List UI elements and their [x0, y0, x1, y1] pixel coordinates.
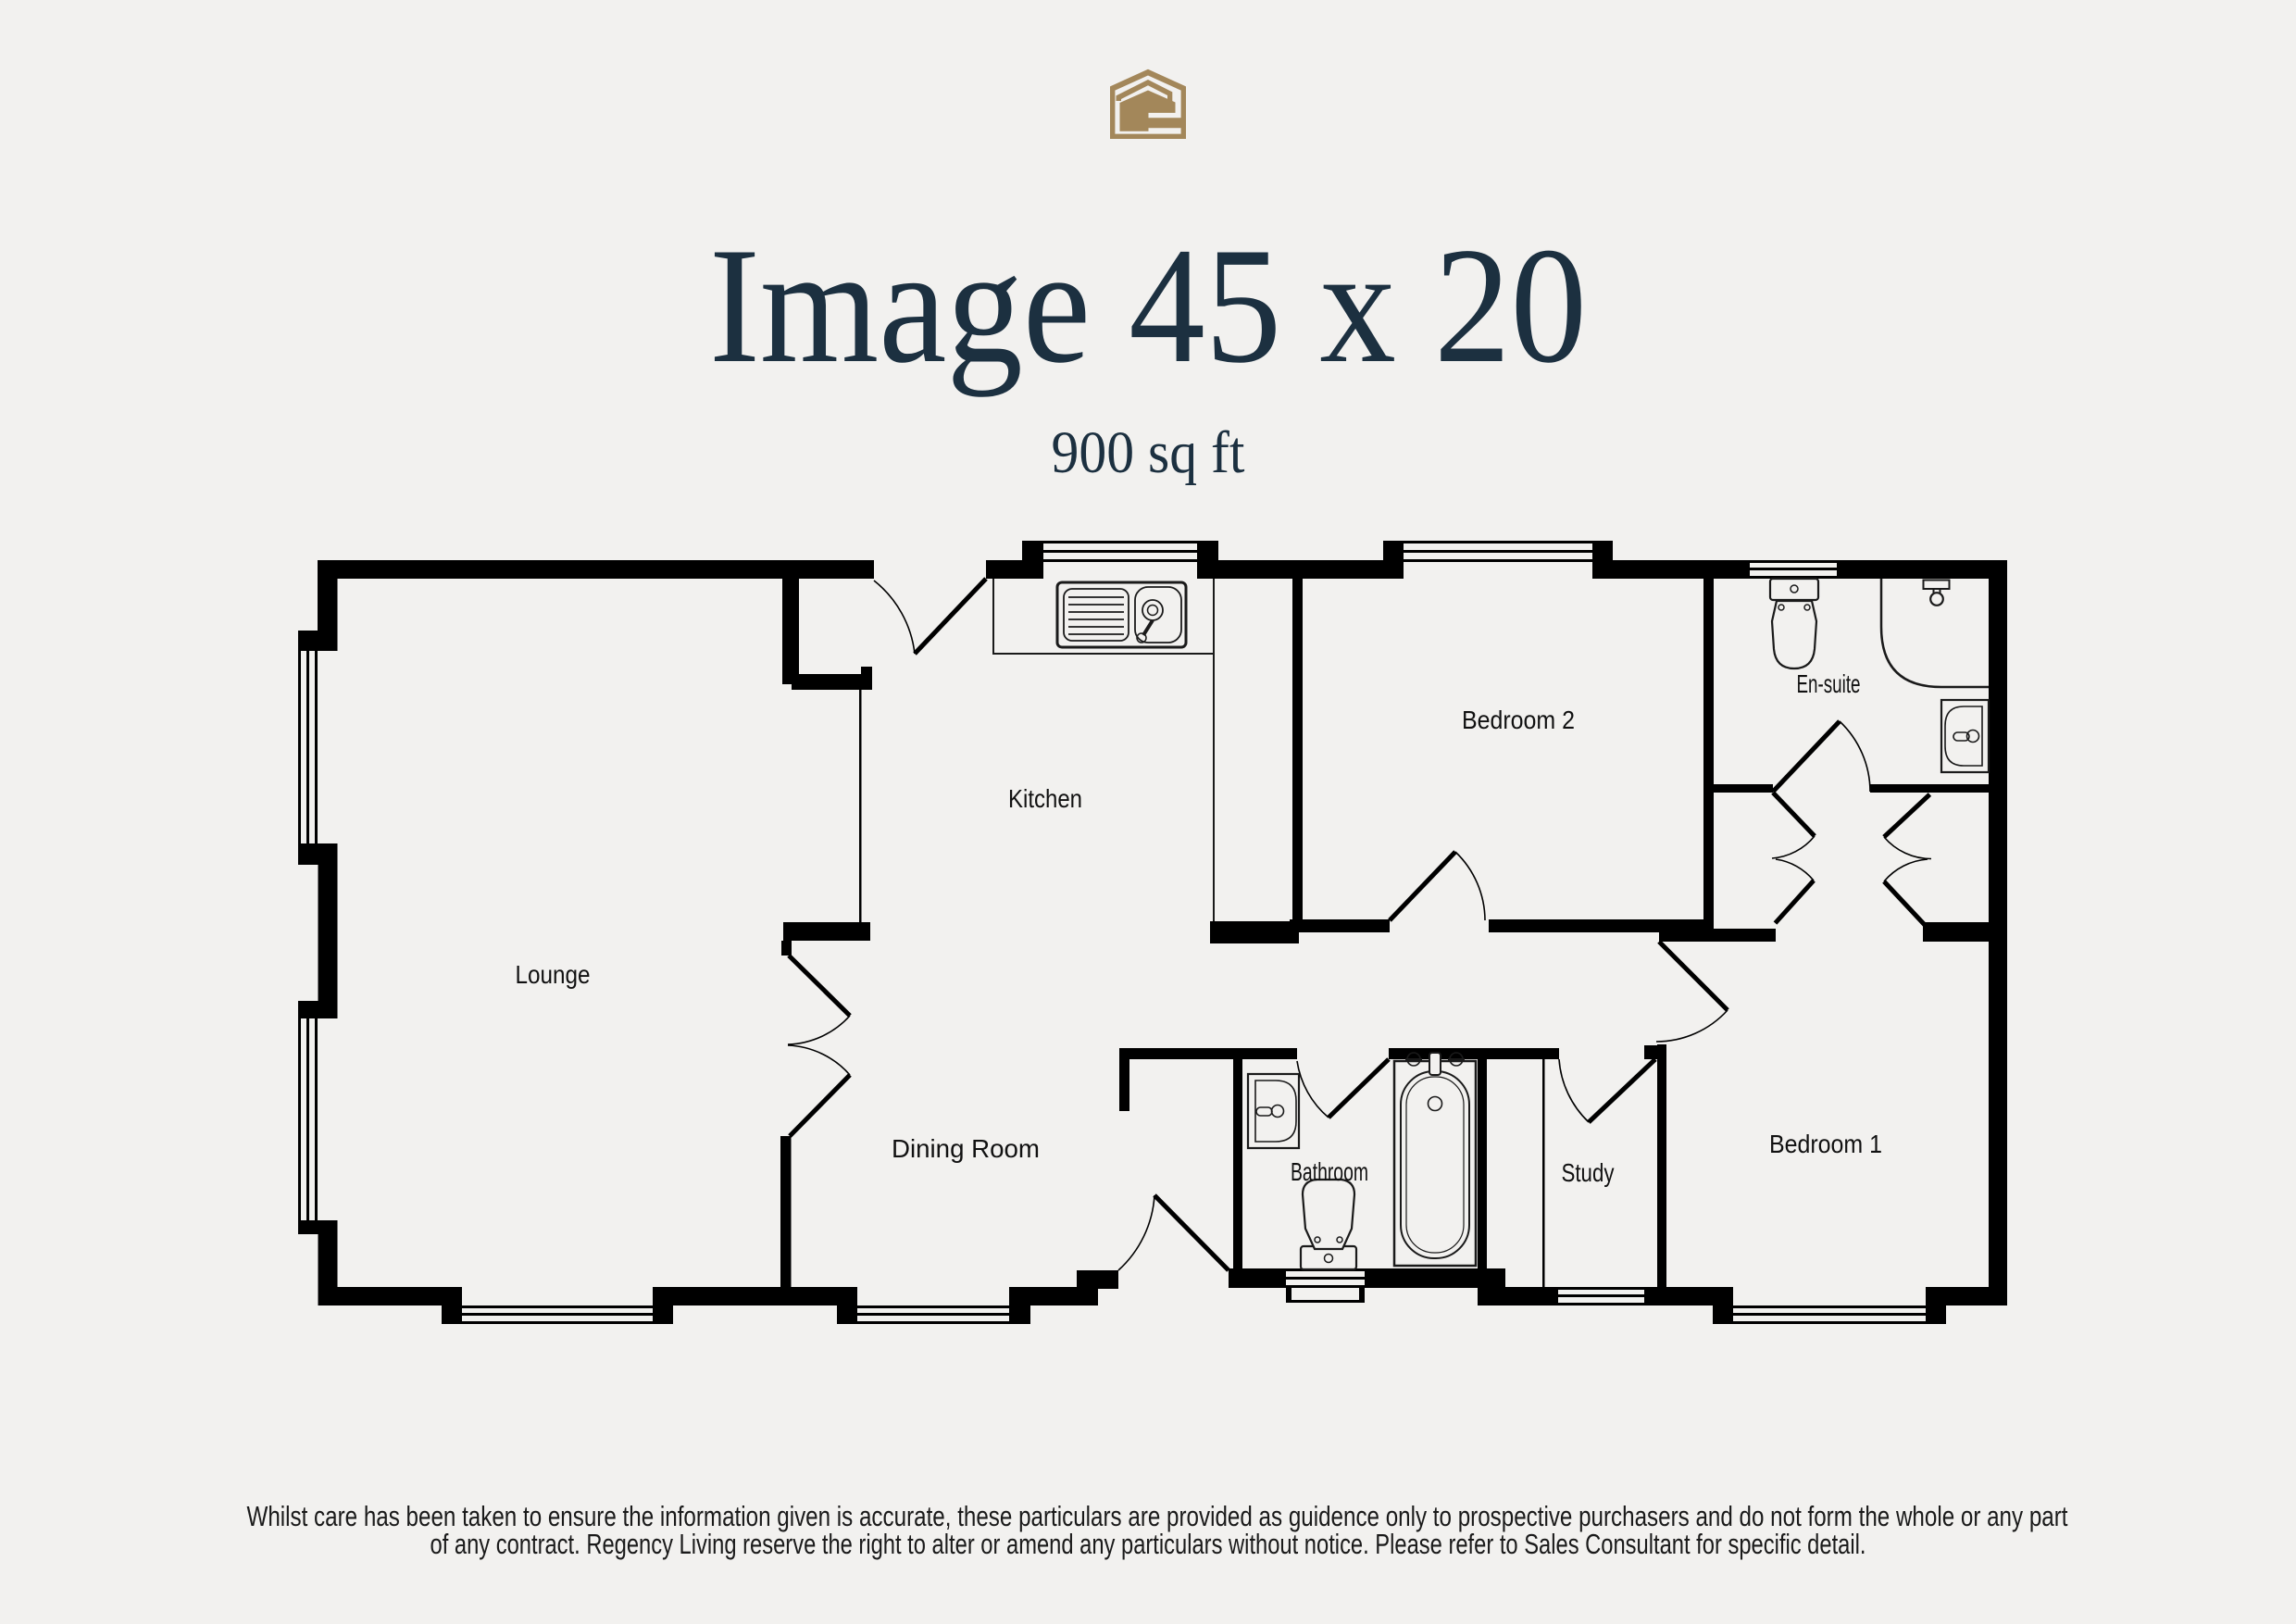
svg-text:Lounge: Lounge: [516, 960, 591, 989]
svg-text:Kitchen: Kitchen: [1008, 784, 1082, 813]
svg-text:Study: Study: [1562, 1158, 1615, 1187]
svg-text:Image 45 x 20: Image 45 x 20: [709, 213, 1587, 397]
svg-text:Bedroom 1: Bedroom 1: [1769, 1130, 1882, 1158]
svg-text:Bedroom 2: Bedroom 2: [1462, 706, 1575, 734]
svg-text:En-suite: En-suite: [1797, 669, 1861, 698]
svg-text:Bathroom: Bathroom: [1291, 1157, 1368, 1186]
svg-text:Dining Room: Dining Room: [892, 1134, 1040, 1163]
svg-text:900 sq ft: 900 sq ft: [1052, 419, 1245, 486]
svg-text:of any contract. Regency Livin: of any contract. Regency Living reserve …: [430, 1528, 1866, 1560]
